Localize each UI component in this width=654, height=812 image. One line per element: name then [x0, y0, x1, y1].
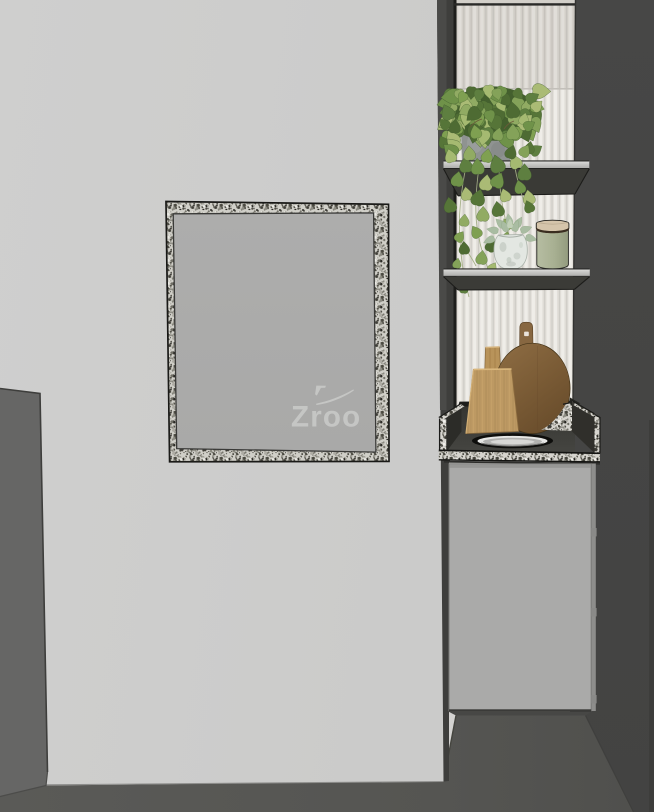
- svg-text:Zroo: Zroo: [291, 400, 361, 433]
